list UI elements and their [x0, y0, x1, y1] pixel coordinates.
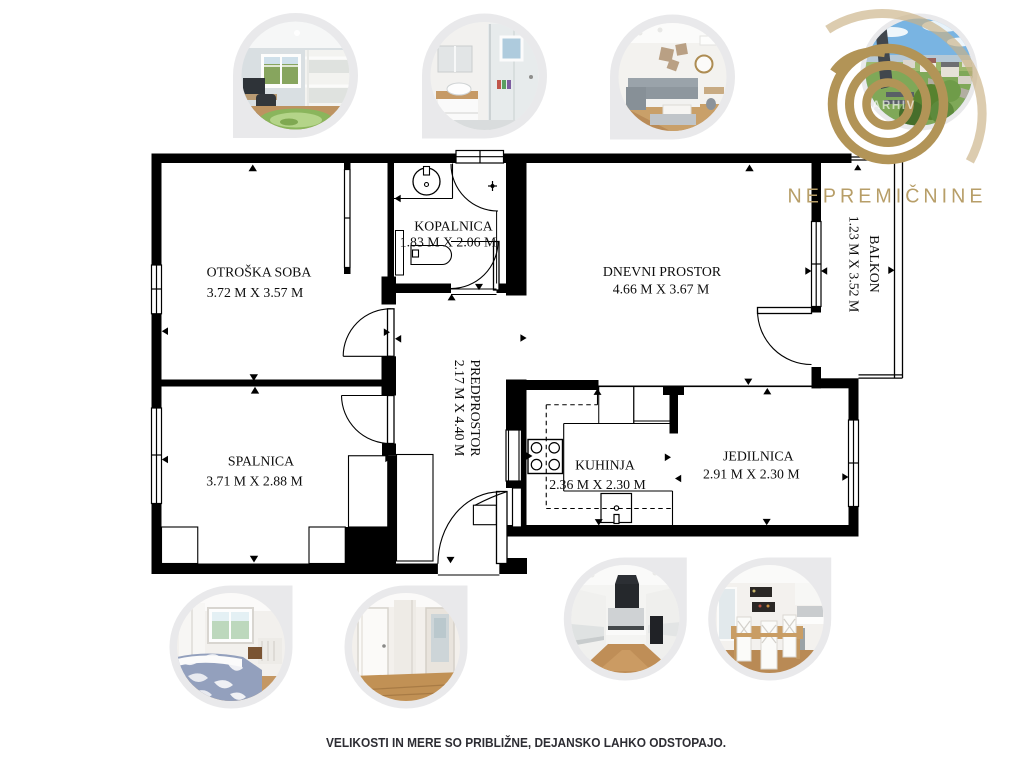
- svg-text:KOPALNICA: KOPALNICA: [414, 219, 492, 234]
- svg-text:PREDPROSTOR: PREDPROSTOR: [468, 359, 483, 457]
- svg-text:NEPREMIČNINE: NEPREMIČNINE: [788, 185, 987, 208]
- svg-text:2.17 M X 4.40 M: 2.17 M X 4.40 M: [452, 360, 467, 457]
- svg-text:1.83 M X 2.06 M: 1.83 M X 2.06 M: [400, 235, 497, 250]
- svg-text:2.91 M X 2.30 M: 2.91 M X 2.30 M: [703, 467, 800, 482]
- svg-text:2.36 M X 2.30 M: 2.36 M X 2.30 M: [549, 477, 646, 492]
- svg-text:JEDILNICA: JEDILNICA: [723, 449, 794, 464]
- svg-text:OTROŠKA SOBA: OTROŠKA SOBA: [207, 264, 312, 280]
- svg-text:SPALNICA: SPALNICA: [228, 454, 294, 469]
- svg-text:4.66 M X 3.67 M: 4.66 M X 3.67 M: [613, 282, 710, 297]
- svg-text:KUHINJA: KUHINJA: [575, 458, 635, 473]
- svg-text:BALKON: BALKON: [867, 235, 882, 293]
- svg-text:1.23 M X 3.52 M: 1.23 M X 3.52 M: [847, 216, 862, 313]
- svg-text:VELIKOSTI IN MERE SO PRIBLIŽNE: VELIKOSTI IN MERE SO PRIBLIŽNE, DEJANSKO…: [326, 735, 726, 750]
- svg-text:3.71 M X 2.88 M: 3.71 M X 2.88 M: [206, 474, 303, 489]
- svg-text:DNEVNI PROSTOR: DNEVNI PROSTOR: [603, 264, 722, 279]
- svg-text:ARHIV: ARHIV: [872, 100, 916, 112]
- svg-text:3.72 M X 3.57 M: 3.72 M X 3.57 M: [207, 285, 304, 300]
